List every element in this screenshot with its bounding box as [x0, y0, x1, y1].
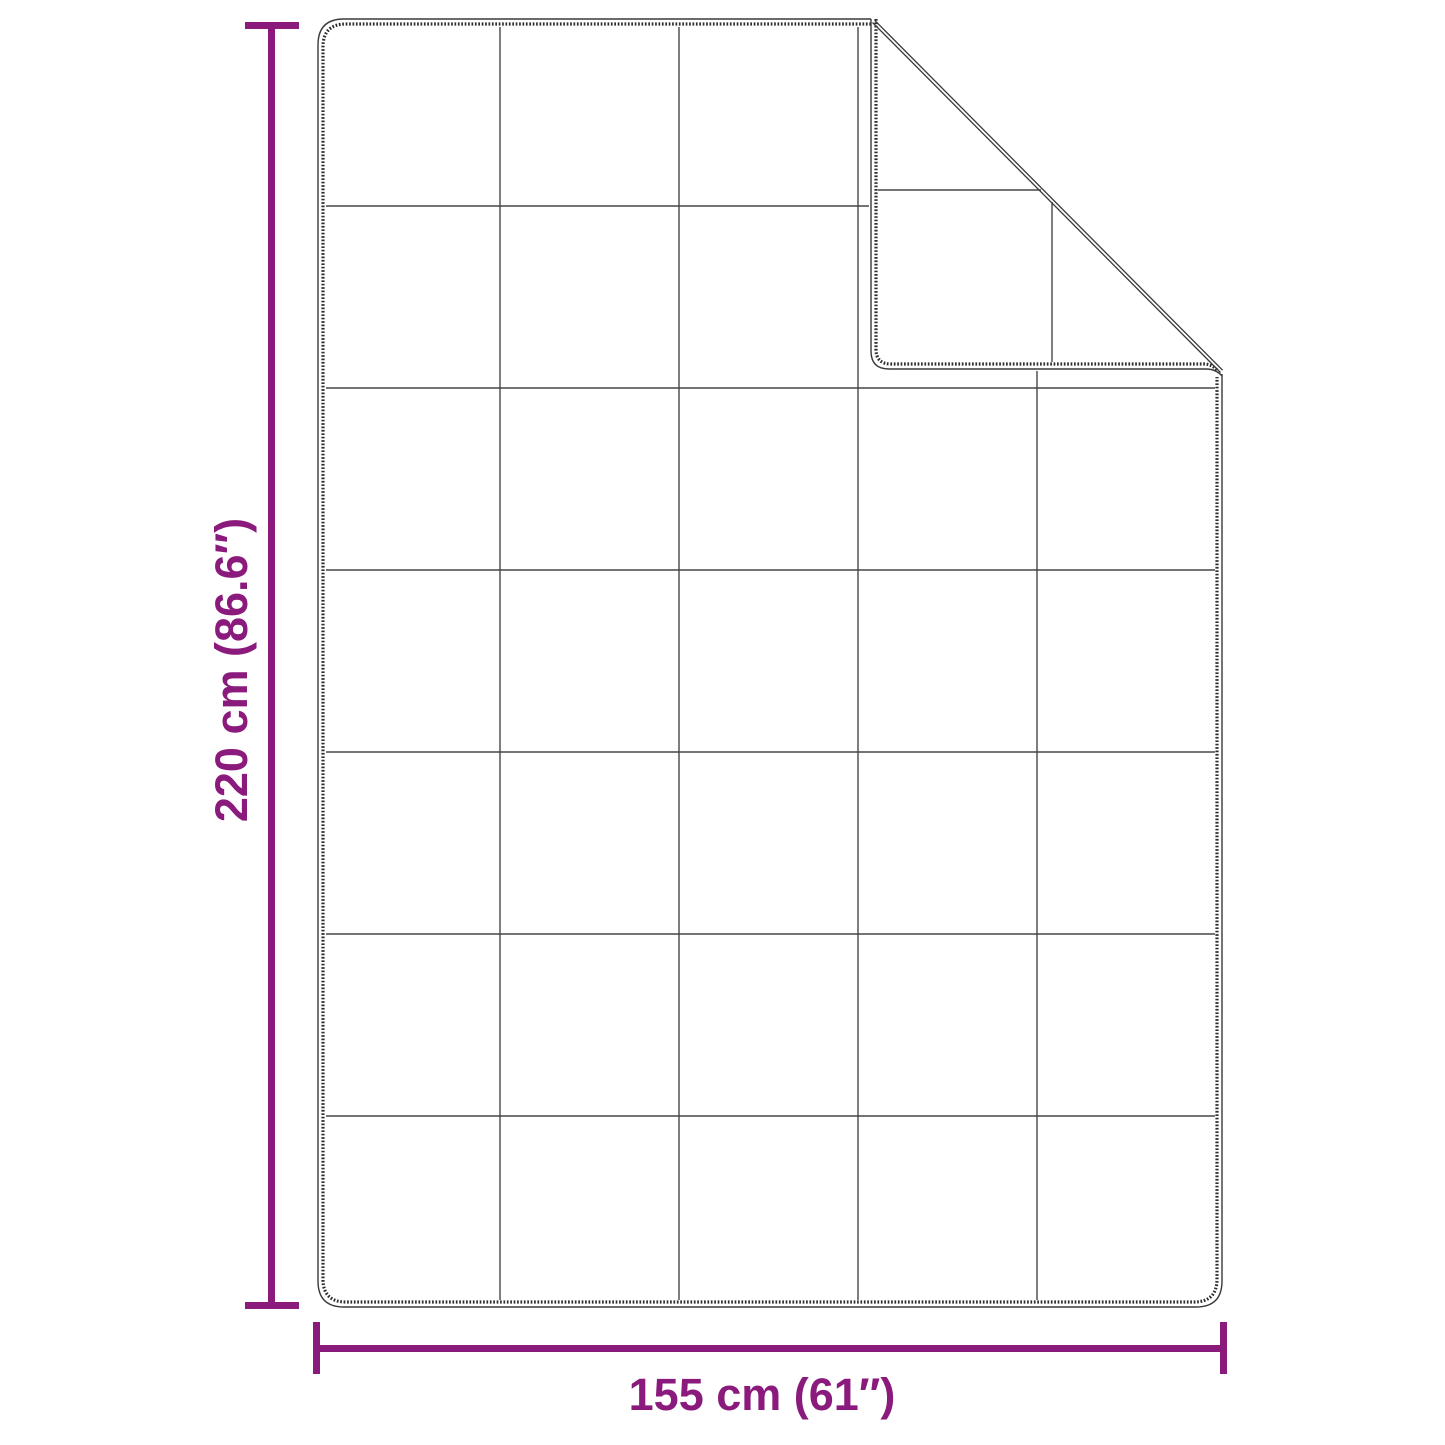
- width-dimension-line: [313, 1322, 1227, 1374]
- fold-crease-line: [875, 20, 1223, 370]
- blanket-edge-stitching: [323, 24, 1217, 1302]
- width-dimension-left-cap: [313, 1322, 320, 1374]
- quilt-grid: [326, 27, 1215, 1300]
- height-dimension-top-cap: [245, 22, 299, 29]
- fold-crease-line: [873, 23, 1221, 373]
- height-dimension-bottom-cap: [245, 1302, 299, 1309]
- blanket-outline: [318, 19, 1222, 1307]
- blanket-edge-line: [318, 19, 1222, 1307]
- height-dimension-bar: [268, 22, 275, 1309]
- fold-crease: [873, 20, 1223, 372]
- product-dimension-diagram: 220 cm (86.6″) 155 cm (61″): [0, 0, 1445, 1445]
- width-dimension-label: 155 cm (61″): [629, 1369, 896, 1421]
- width-dimension-bar: [313, 1345, 1227, 1352]
- width-dimension-right-cap: [1220, 1322, 1227, 1374]
- height-dimension-label: 220 cm (86.6″): [206, 518, 258, 822]
